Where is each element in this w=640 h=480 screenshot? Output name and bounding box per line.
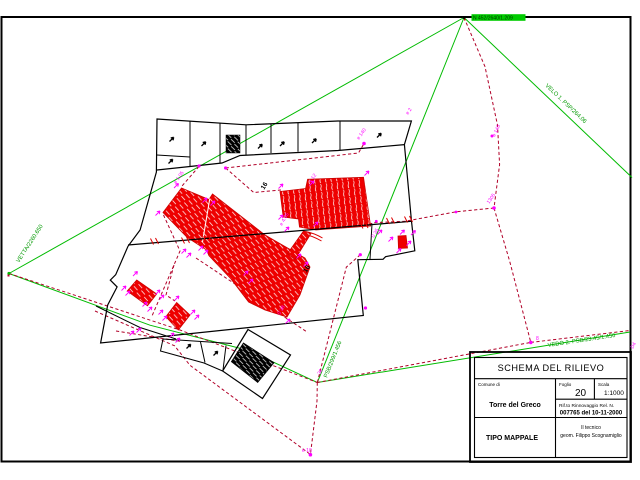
svg-text:007765 del 10-11-2000: 007765 del 10-11-2000 [560,411,623,417]
svg-text:SCHEMA DEL RILIEVO: SCHEMA DEL RILIEVO [498,363,605,373]
svg-text:Torre del Greco: Torre del Greco [489,402,541,409]
svg-text:TIPO MAPPALE: TIPO MAPPALE [486,435,538,442]
svg-text:20: 20 [575,388,587,399]
svg-text:Il tecnico: Il tecnico [581,425,601,431]
svg-text:8: 8 [536,336,539,342]
svg-text:Foglio: Foglio [559,382,572,387]
svg-text:geom. Filippo Scognamiglio: geom. Filippo Scognamiglio [560,433,622,439]
svg-text:1:1000: 1:1000 [604,390,624,397]
svg-text:Rif.to Rinnovaggio Rel. N.: Rif.to Rinnovaggio Rel. N. [559,403,614,409]
svg-text:Scala: Scala [598,382,610,387]
svg-text:e 10: e 10 [302,448,312,454]
svg-text:N 452/2640/1.209: N 452/2640/1.209 [473,16,513,22]
svg-text:Comune di: Comune di [478,382,500,387]
